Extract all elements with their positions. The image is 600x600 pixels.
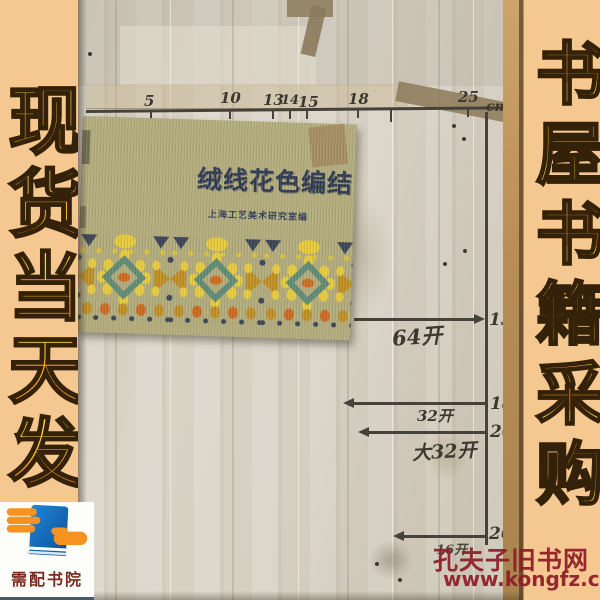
measure-line-20 (368, 431, 486, 434)
paper-patch (120, 26, 316, 86)
ruler-tick (272, 111, 274, 119)
arrow-left-icon (358, 427, 369, 437)
knit-pattern-graphic (77, 232, 354, 329)
ink-dot (88, 52, 92, 56)
ink-dot (462, 137, 466, 141)
ruler-tick (467, 109, 469, 117)
ink-dot (463, 249, 467, 253)
ruler-number-14: 14 (281, 93, 299, 108)
seller-name: 需配书院 (0, 566, 94, 590)
ruler-number-10: 10 (220, 89, 241, 107)
arrow-right-icon (474, 314, 485, 324)
vertical-reference-line (485, 112, 488, 545)
arrow-left-icon (393, 531, 404, 541)
measure-line-26 (403, 535, 486, 538)
tape-on-book (308, 124, 348, 168)
book-hands-logo-icon (5, 504, 89, 566)
book-title: 绒线花色编结 (197, 160, 354, 201)
right-banner-text: 书屋书籍采购 (526, 0, 600, 518)
book-photo: 5 10 13 14 15 18 25 cm 13 64开 18 32开 20 … (78, 0, 523, 600)
ink-dot (443, 262, 447, 266)
ink-dot (375, 562, 379, 566)
ruler-tick (357, 110, 359, 118)
ruler-number-18: 18 (348, 90, 369, 108)
format-label-da32kai: 大32开 (411, 435, 477, 465)
knit-pattern-band (77, 232, 354, 329)
ruler-tick (390, 110, 392, 122)
ruler-number-15: 15 (298, 93, 319, 111)
book-cover: 绒线花色编结 上海工艺美术研究室编 (76, 116, 357, 340)
ruler-tick (229, 111, 231, 119)
kongfz-watermark-url: www.kongfz.com (443, 567, 600, 591)
seller-logo: 需配书院 (0, 502, 94, 600)
left-banner-text: 现货当天发 (0, 0, 78, 497)
format-label-64kai: 64开 (391, 319, 443, 352)
photo-edge-shadow (78, 591, 523, 600)
ruler-number-5: 5 (144, 92, 154, 110)
right-promo-banner: 书屋书籍采购 (523, 0, 600, 600)
ruler-number-25: 25 (458, 88, 479, 106)
ruler-tick (306, 111, 308, 119)
ink-dot (452, 124, 456, 128)
format-label-32kai: 32开 (417, 405, 453, 426)
ruler-tick (289, 111, 291, 119)
book-subtitle: 上海工艺美术研究室编 (208, 207, 308, 223)
book-listing-image[interactable]: 5 10 13 14 15 18 25 cm 13 64开 18 32开 20 … (0, 0, 600, 600)
arrow-left-icon (343, 398, 354, 408)
paper-stain (368, 540, 414, 580)
ink-dot (398, 578, 402, 582)
